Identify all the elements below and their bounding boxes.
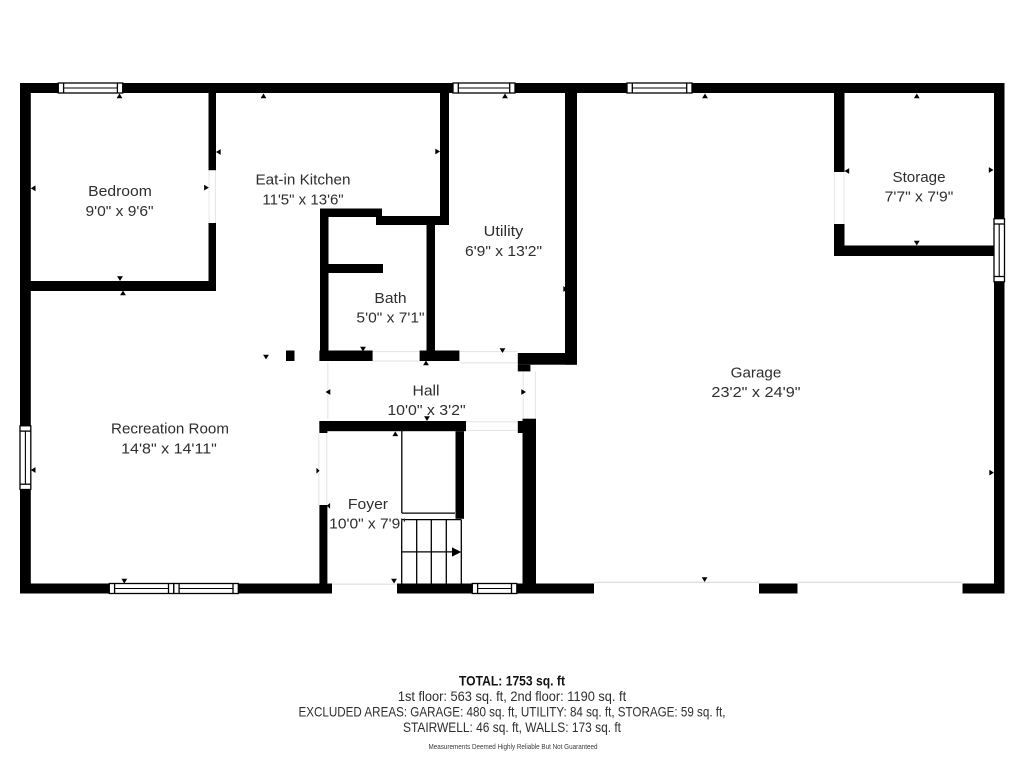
svg-text:Hall: Hall (413, 382, 440, 399)
svg-text:Utility: Utility (484, 223, 524, 240)
svg-text:1st floor: 563 sq. ft, 2nd flo: 1st floor: 563 sq. ft, 2nd floor: 1190 s… (398, 688, 626, 704)
svg-text:STAIRWELL: 46 sq. ft, WALLS: 1: STAIRWELL: 46 sq. ft, WALLS: 173 sq. ft (403, 719, 621, 735)
svg-text:9'0" x 9'6": 9'0" x 9'6" (86, 203, 154, 220)
svg-text:Bedroom: Bedroom (88, 183, 152, 200)
svg-text:7'7" x 7'9": 7'7" x 7'9" (885, 189, 954, 206)
svg-text:Storage: Storage (893, 169, 946, 186)
svg-text:Measurements Deemed Highly Rel: Measurements Deemed Highly Reliable But … (429, 742, 598, 751)
svg-text:TOTAL: 1753 sq. ft: TOTAL: 1753 sq. ft (459, 673, 565, 689)
svg-text:10'0" x 7'9": 10'0" x 7'9" (329, 516, 406, 533)
svg-text:Foyer: Foyer (348, 496, 388, 513)
svg-text:23'2" x 24'9": 23'2" x 24'9" (711, 384, 800, 401)
svg-text:10'0" x 3'2": 10'0" x 3'2" (387, 402, 465, 419)
svg-text:Bath: Bath (374, 290, 406, 307)
svg-text:EXCLUDED AREAS: GARAGE: 480 sq: EXCLUDED AREAS: GARAGE: 480 sq. ft, UTIL… (299, 704, 726, 720)
svg-text:14'8" x 14'11": 14'8" x 14'11" (121, 440, 217, 457)
svg-text:Recreation Room: Recreation Room (111, 421, 229, 438)
svg-text:6'9" x 13'2": 6'9" x 13'2" (465, 243, 542, 260)
svg-text:Garage: Garage (731, 364, 782, 381)
svg-text:5'0" x 7'1": 5'0" x 7'1" (356, 310, 424, 327)
svg-text:11'5" x 13'6": 11'5" x 13'6" (262, 191, 343, 208)
svg-text:Eat-in Kitchen: Eat-in Kitchen (256, 172, 351, 189)
